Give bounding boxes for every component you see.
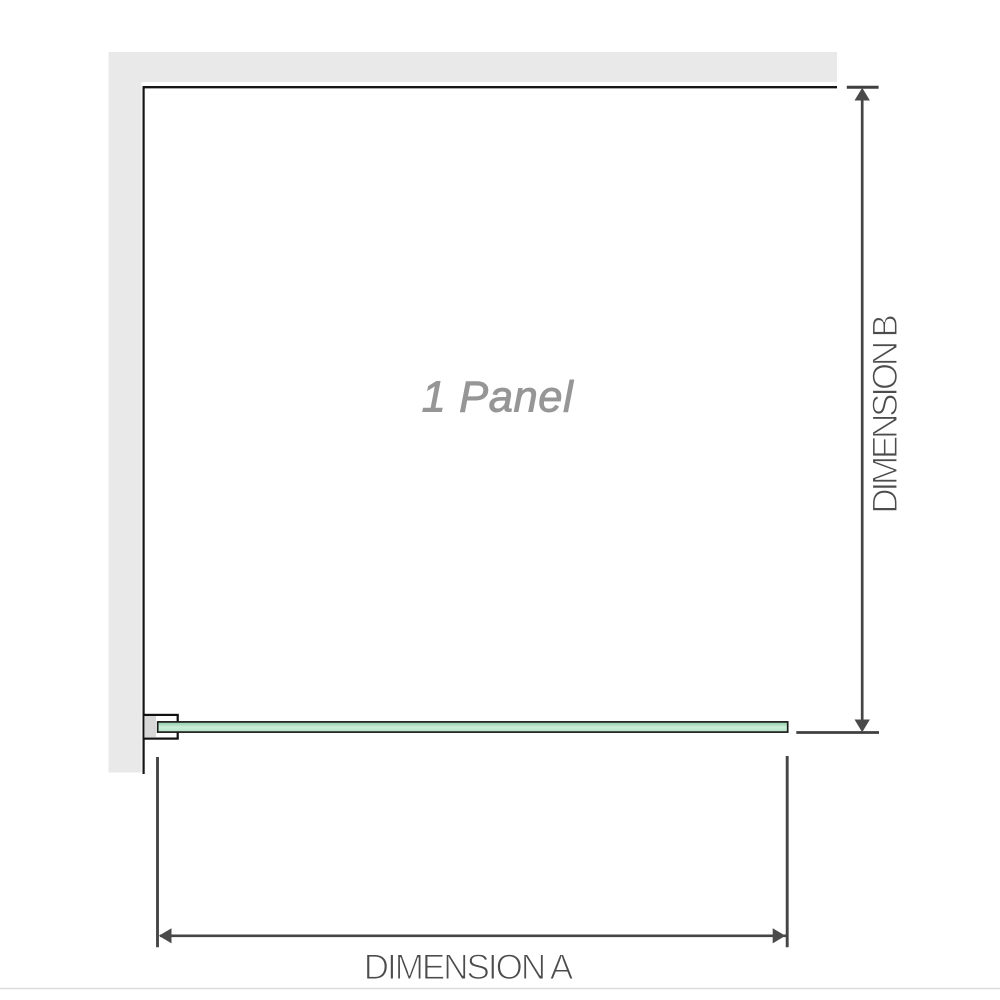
svg-text:DIMENSION B: DIMENSION B [866,316,905,514]
svg-text:1 Panel: 1 Panel [422,374,574,422]
svg-text:DIMENSION A: DIMENSION A [364,948,574,987]
